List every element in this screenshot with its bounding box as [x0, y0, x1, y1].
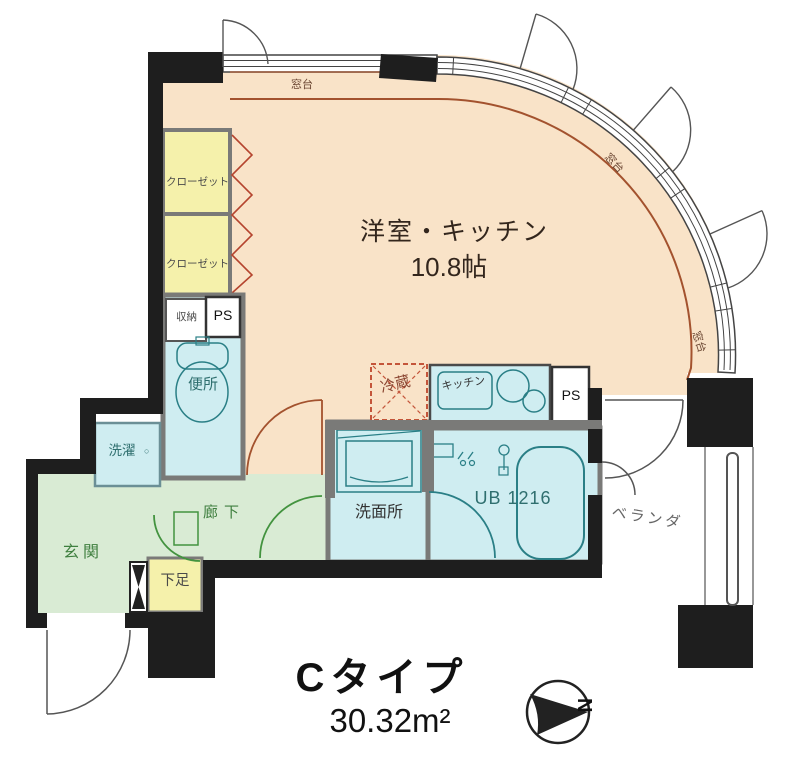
plan-type-title: Cタイプ: [282, 658, 482, 698]
wall-entrance-left: [26, 613, 47, 628]
pipe-space-lower-label: PS: [556, 388, 586, 402]
wall-block-bottom-right: [678, 605, 753, 668]
partition-washroom-top: [325, 420, 428, 430]
main-room-size-label: 10.8帖: [394, 254, 504, 280]
wall-veranda-left-lower: [588, 495, 602, 578]
closet-1-label: クローゼット: [166, 177, 228, 188]
entrance-label: 玄関: [54, 545, 112, 561]
partition-bath-top: [428, 420, 602, 429]
plan-floor-area: 30.32m²: [300, 704, 480, 737]
wall-block-bottom-left: [148, 612, 215, 678]
laundry-label: 洗濯: [100, 444, 144, 458]
entrance-door-arc: [47, 630, 130, 714]
storage-label: 収納: [168, 312, 205, 323]
veranda-railing: [727, 453, 738, 605]
bath-label: UB 1216: [468, 489, 558, 507]
window-sill-top-label: 窓台: [291, 80, 313, 91]
washroom-label: 洗面所: [334, 505, 424, 521]
pipe-space-upper-label: PS: [207, 308, 239, 322]
wall-left-upper: [148, 52, 163, 412]
main-room-label: 洋室・キッチン: [352, 220, 557, 245]
wall-top-right: [379, 54, 438, 82]
closet-2-label: クローゼット: [166, 259, 228, 270]
corridor-label: 廊下: [196, 505, 252, 520]
wall-left-lower: [26, 459, 38, 628]
floorplan-page: クローゼット クローゼット 収納 PS 便所 洗濯 ○ 玄関 廊下 下足 洋室・…: [0, 0, 800, 757]
wall-block-top-right: [687, 378, 753, 447]
partition-washroom-left: [325, 420, 335, 498]
compass-north-letter: N: [574, 698, 594, 712]
wall-entrance-right: [125, 613, 148, 628]
closet-2-floor: [163, 214, 230, 297]
wall-bottom: [203, 560, 602, 578]
toilet-label: 便所: [176, 377, 230, 392]
shoe-box-label: 下足: [153, 574, 197, 589]
laundry-mark: ○: [144, 447, 149, 456]
partition-washroom-bath: [422, 428, 434, 492]
closet-1-floor: [163, 130, 230, 214]
